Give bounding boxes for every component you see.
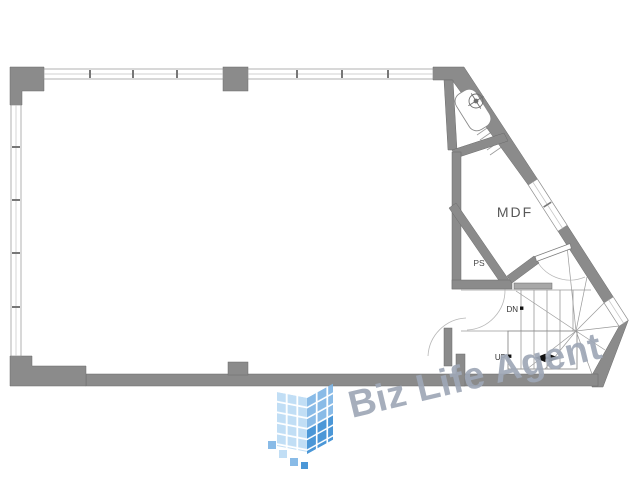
window-band-left [11,105,21,356]
wall-pillar-top-left [10,67,44,105]
logo-face-left [277,392,307,452]
window-diagonal-mdf [528,179,567,231]
wall-pillar-bottom-left [10,356,86,386]
room-label-ps: PS [473,258,485,268]
door-arc-hall-upper [467,289,505,330]
floor-plan-canvas: MDF PS DN UP Biz Life Agent [0,0,640,480]
window-band-top-b [248,69,433,79]
wall-ps-bottom [452,280,512,289]
stair-treads-upper [521,290,573,331]
wall-mdf-bottom [507,256,539,283]
wall-diagonal-mid [558,225,613,302]
mdf-door-leaf [535,244,572,262]
down-marker-dot [520,307,523,310]
stair-label-down: DN [506,305,518,314]
wall-pillar-top-mid [223,67,248,91]
room-label-mdf: MDF [497,204,533,220]
wall-pillar-bottom-mid [228,362,248,375]
windows [11,69,628,356]
watermark-logo [268,384,333,469]
watermark: Biz Life Agent [268,325,606,469]
window-band-top-a [44,69,223,79]
stair-handrail-wall [514,283,552,289]
window-diagonal-stair [604,297,628,327]
wall-sink-closet-left [444,80,457,150]
